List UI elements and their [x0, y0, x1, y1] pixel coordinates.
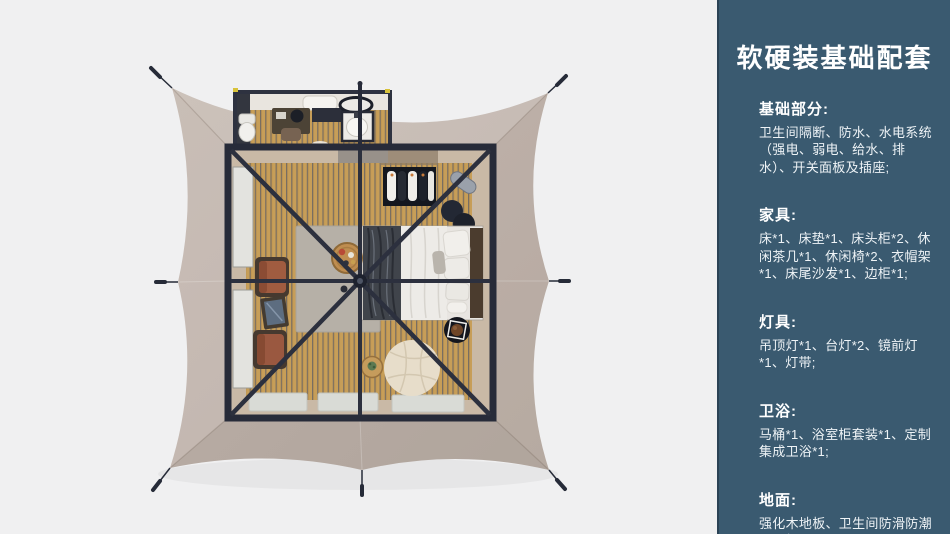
- section-heading: 地面:: [759, 489, 936, 510]
- section-heading: 灯具:: [759, 311, 936, 332]
- bean-bag: [384, 340, 440, 396]
- remote: [341, 286, 348, 293]
- sink: [342, 112, 373, 141]
- clothes-rack: [383, 167, 436, 206]
- section-body: 吊顶灯*1、台灯*2、镜前灯*1、灯带;: [759, 337, 937, 372]
- headboard: [470, 228, 483, 318]
- bathroom-mirror: [340, 98, 372, 113]
- bathroom-block: [233, 88, 392, 147]
- panel-title: 软硬装基础配套: [725, 44, 944, 74]
- section-body: 床*1、床垫*1、床头柜*2、休闲茶几*1、休闲椅*2、衣帽架*1、床尾沙发*1…: [759, 230, 937, 283]
- section-body: 卫生间隔断、防水、水电系统（强电、弱电、给水、排水）、开关面板及插座;: [759, 124, 937, 177]
- side-table: [362, 357, 383, 378]
- window-panel: [233, 290, 253, 388]
- section-body: 强化木地板、卫生间防滑防潮石塑板;: [759, 515, 937, 534]
- section-bathroom: 卫浴: 马桶*1、浴室柜套装*1、定制集成卫浴*1;: [759, 400, 936, 461]
- section-basics: 基础部分: 卫生间隔断、防水、水电系统（强电、弱电、给水、排水）、开关面板及插座…: [759, 98, 936, 177]
- section-lighting: 灯具: 吊顶灯*1、台灯*2、镜前灯*1、灯带;: [759, 311, 936, 372]
- window-panel: [233, 167, 253, 267]
- wall-mirror: [260, 295, 289, 329]
- info-panel: 软硬装基础配套 基础部分: 卫生间隔断、防水、水电系统（强电、弱电、给水、排水）…: [717, 0, 950, 534]
- floor-mats: [249, 393, 464, 412]
- section-heading: 家具:: [759, 204, 936, 225]
- section-body: 马桶*1、浴室柜套装*1、定制集成卫浴*1;: [759, 426, 937, 461]
- section-flooring: 地面: 强化木地板、卫生间防滑防潮石塑板;: [759, 489, 936, 534]
- tray-table: [444, 317, 470, 343]
- leisure-chair: [255, 257, 289, 297]
- section-heading: 基础部分:: [759, 98, 936, 119]
- spec-sections: 基础部分: 卫生间隔断、防水、水电系统（强电、弱电、给水、排水）、开关面板及插座…: [719, 98, 950, 534]
- skylight: [303, 96, 337, 110]
- section-heading: 卫浴:: [759, 400, 936, 421]
- bed: [362, 226, 483, 320]
- section-furniture: 家具: 床*1、床垫*1、床头柜*2、休闲茶几*1、休闲椅*2、衣帽架*1、床尾…: [759, 204, 936, 283]
- threshold: [338, 150, 388, 163]
- toilet: [239, 114, 255, 142]
- tent-top-view-render: [0, 0, 717, 534]
- slide: 软硬装基础配套 基础部分: 卫生间隔断、防水、水电系统（强电、弱电、给水、排水）…: [0, 0, 950, 534]
